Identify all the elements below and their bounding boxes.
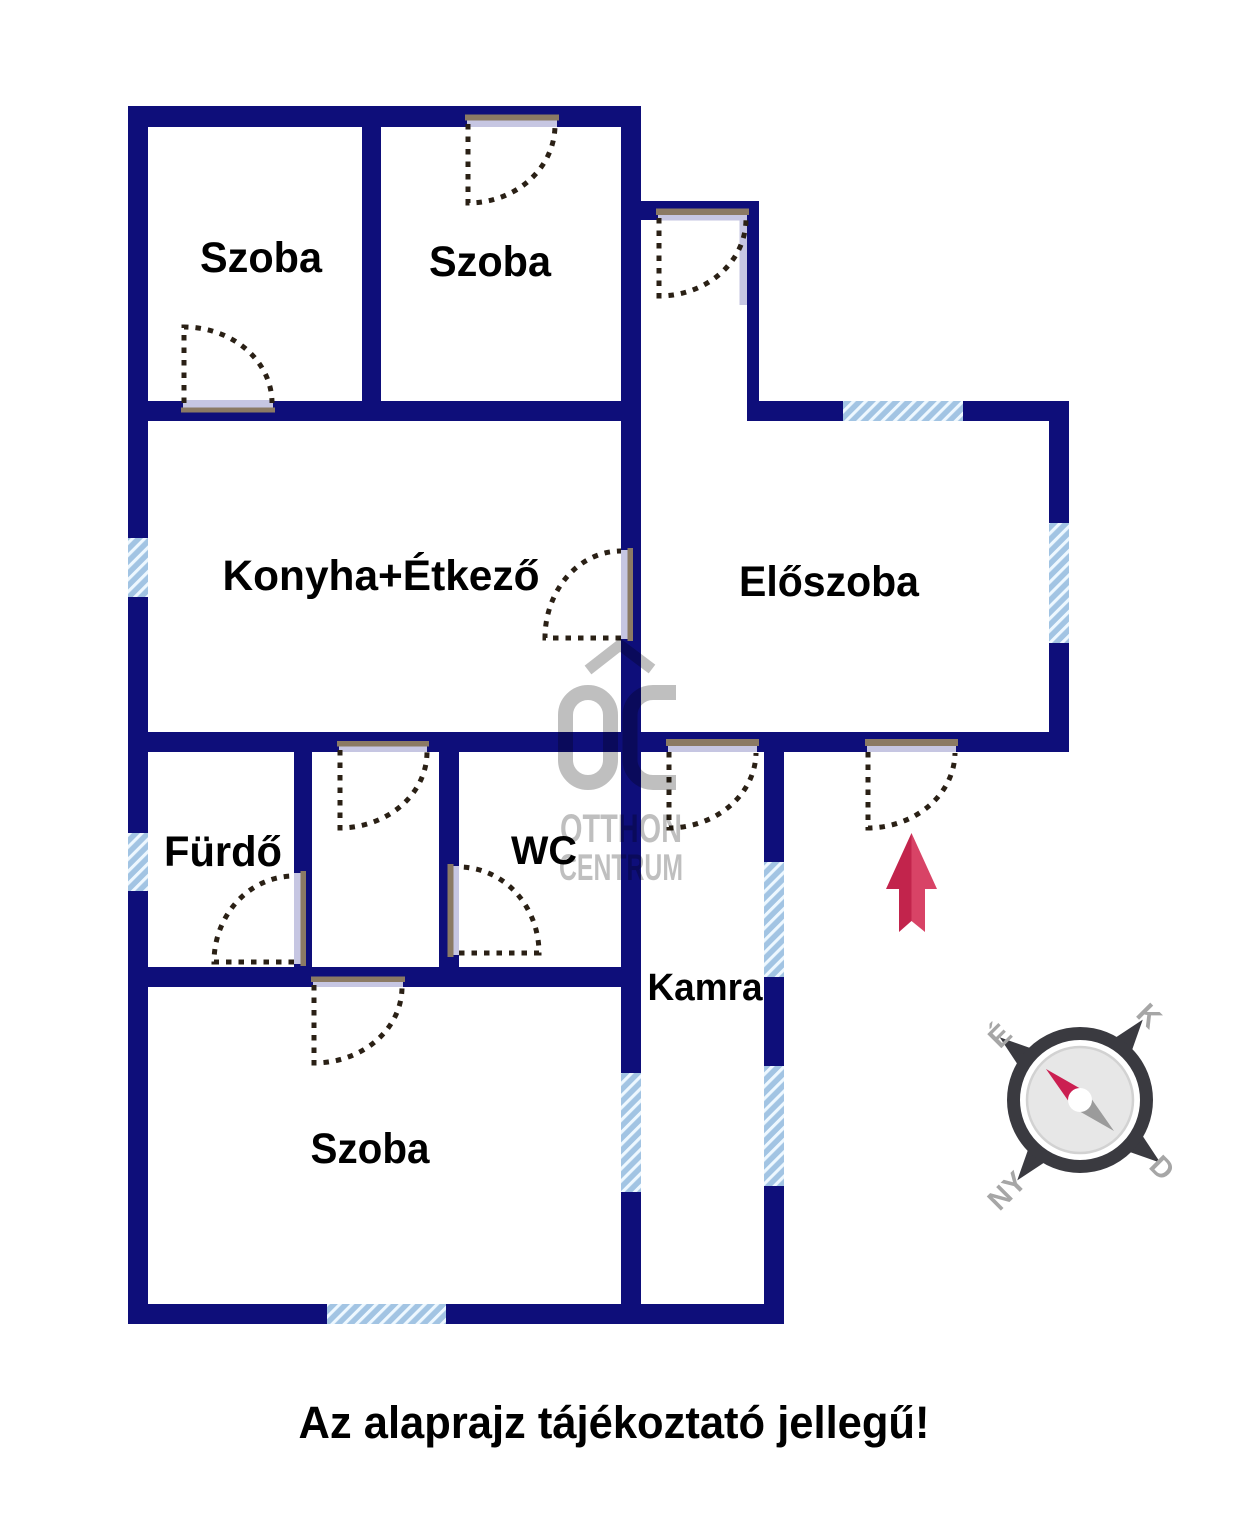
svg-text:CENTRUM: CENTRUM (559, 847, 683, 888)
svg-text:Fürdő: Fürdő (164, 828, 282, 876)
svg-text:Konyha+Étkező: Konyha+Étkező (223, 552, 540, 600)
svg-text:Szoba: Szoba (311, 1125, 431, 1173)
svg-text:WC: WC (511, 829, 577, 873)
svg-text:Szoba: Szoba (200, 234, 323, 282)
svg-text:Kamra: Kamra (648, 967, 764, 1009)
svg-text:OTTHON: OTTHON (560, 807, 682, 851)
svg-text:Előszoba: Előszoba (739, 558, 920, 606)
svg-text:Az alaprajz tájékoztató jelleg: Az alaprajz tájékoztató jellegű! (299, 1397, 930, 1448)
svg-text:Szoba: Szoba (429, 238, 552, 286)
